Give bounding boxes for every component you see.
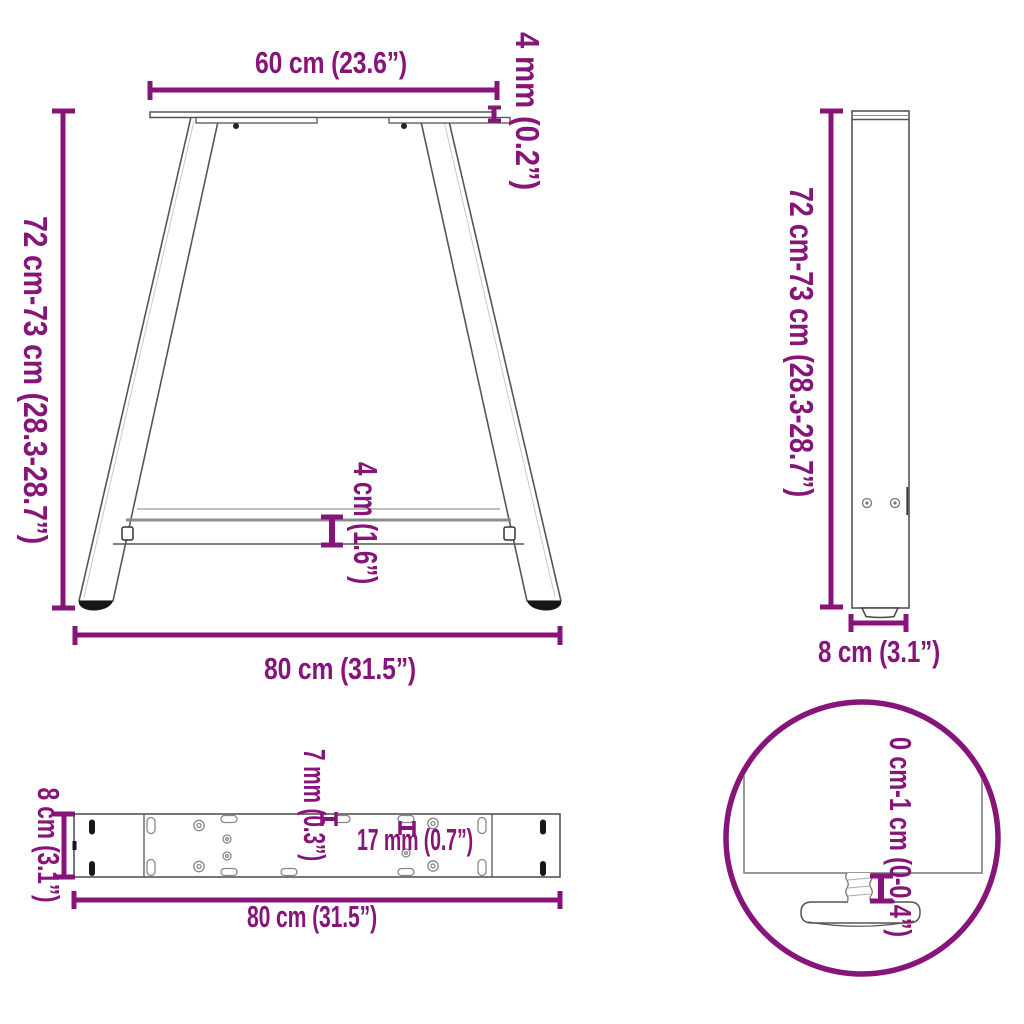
label-crossbar-length: 80 cm (31.5”) (247, 899, 377, 934)
dim-front-top-width (150, 81, 497, 100)
label-front-crossbar-height: 4 cm (1.6”) (347, 462, 384, 584)
label-foot-adjust-range: 0 cm-1 cm (0-0.4”) (883, 737, 918, 937)
label-slot-width: 7 mm (0.3”) (297, 749, 332, 861)
crossbar-left-clip (122, 527, 133, 540)
edge-tab (73, 841, 77, 850)
front-left-foot (79, 601, 113, 611)
side-screw-right-center (893, 501, 896, 504)
detail-leg-body (744, 690, 982, 873)
vslot-1 (147, 818, 155, 834)
dim-front-base-width (75, 626, 560, 645)
label-side-depth: 8 cm (3.1”) (818, 634, 940, 669)
vslot-2 (147, 860, 155, 876)
front-left-mount-bar (196, 118, 317, 124)
label-crossbar-width: 8 cm (3.1”) (31, 788, 66, 903)
front-right-foot (527, 601, 561, 611)
label-side-height: 72 cm-73 cm (28.3-28.7”) (783, 187, 820, 497)
side-screw-left-center (865, 501, 868, 504)
drawing-layer (73, 111, 983, 926)
front-top-plate (150, 112, 495, 118)
slot-filled-4 (540, 861, 546, 876)
vslot-4 (478, 860, 486, 876)
label-front-height: 72 cm-73 cm (28.3-28.7”) (17, 216, 54, 544)
vslot-3 (478, 818, 486, 834)
label-front-top-width: 60 cm (23.6”) (255, 45, 407, 80)
slot-filled-3 (540, 820, 546, 835)
side-foot (862, 608, 898, 618)
label-front-plate-thickness: 4 mm (0.2”) (509, 32, 546, 190)
dim-front-height (52, 111, 75, 608)
slot-filled-2 (89, 861, 95, 876)
front-view-drawing (79, 112, 561, 611)
side-leg-body (852, 111, 909, 608)
label-slot-length: 17 mm (0.7”) (357, 822, 473, 857)
label-front-base-width: 80 cm (31.5”) (264, 651, 416, 686)
diagram-canvas: 60 cm (23.6”) 4 mm (0.2”) 72 cm-73 cm (2… (0, 0, 1024, 1024)
slot-filled-1 (89, 820, 95, 835)
product-dimension-diagram: 60 cm (23.6”) 4 mm (0.2”) 72 cm-73 cm (2… (0, 0, 1024, 1024)
front-right-leg-edge-highlight (444, 121, 555, 597)
front-left-screw (233, 123, 239, 129)
dim-side-height (820, 111, 843, 607)
crossbar-right-clip (504, 527, 515, 540)
foot-detail-drawing (744, 690, 982, 926)
front-right-screw (401, 123, 407, 129)
front-left-leg-edge-highlight (84, 121, 194, 597)
side-view-drawing (852, 111, 909, 618)
